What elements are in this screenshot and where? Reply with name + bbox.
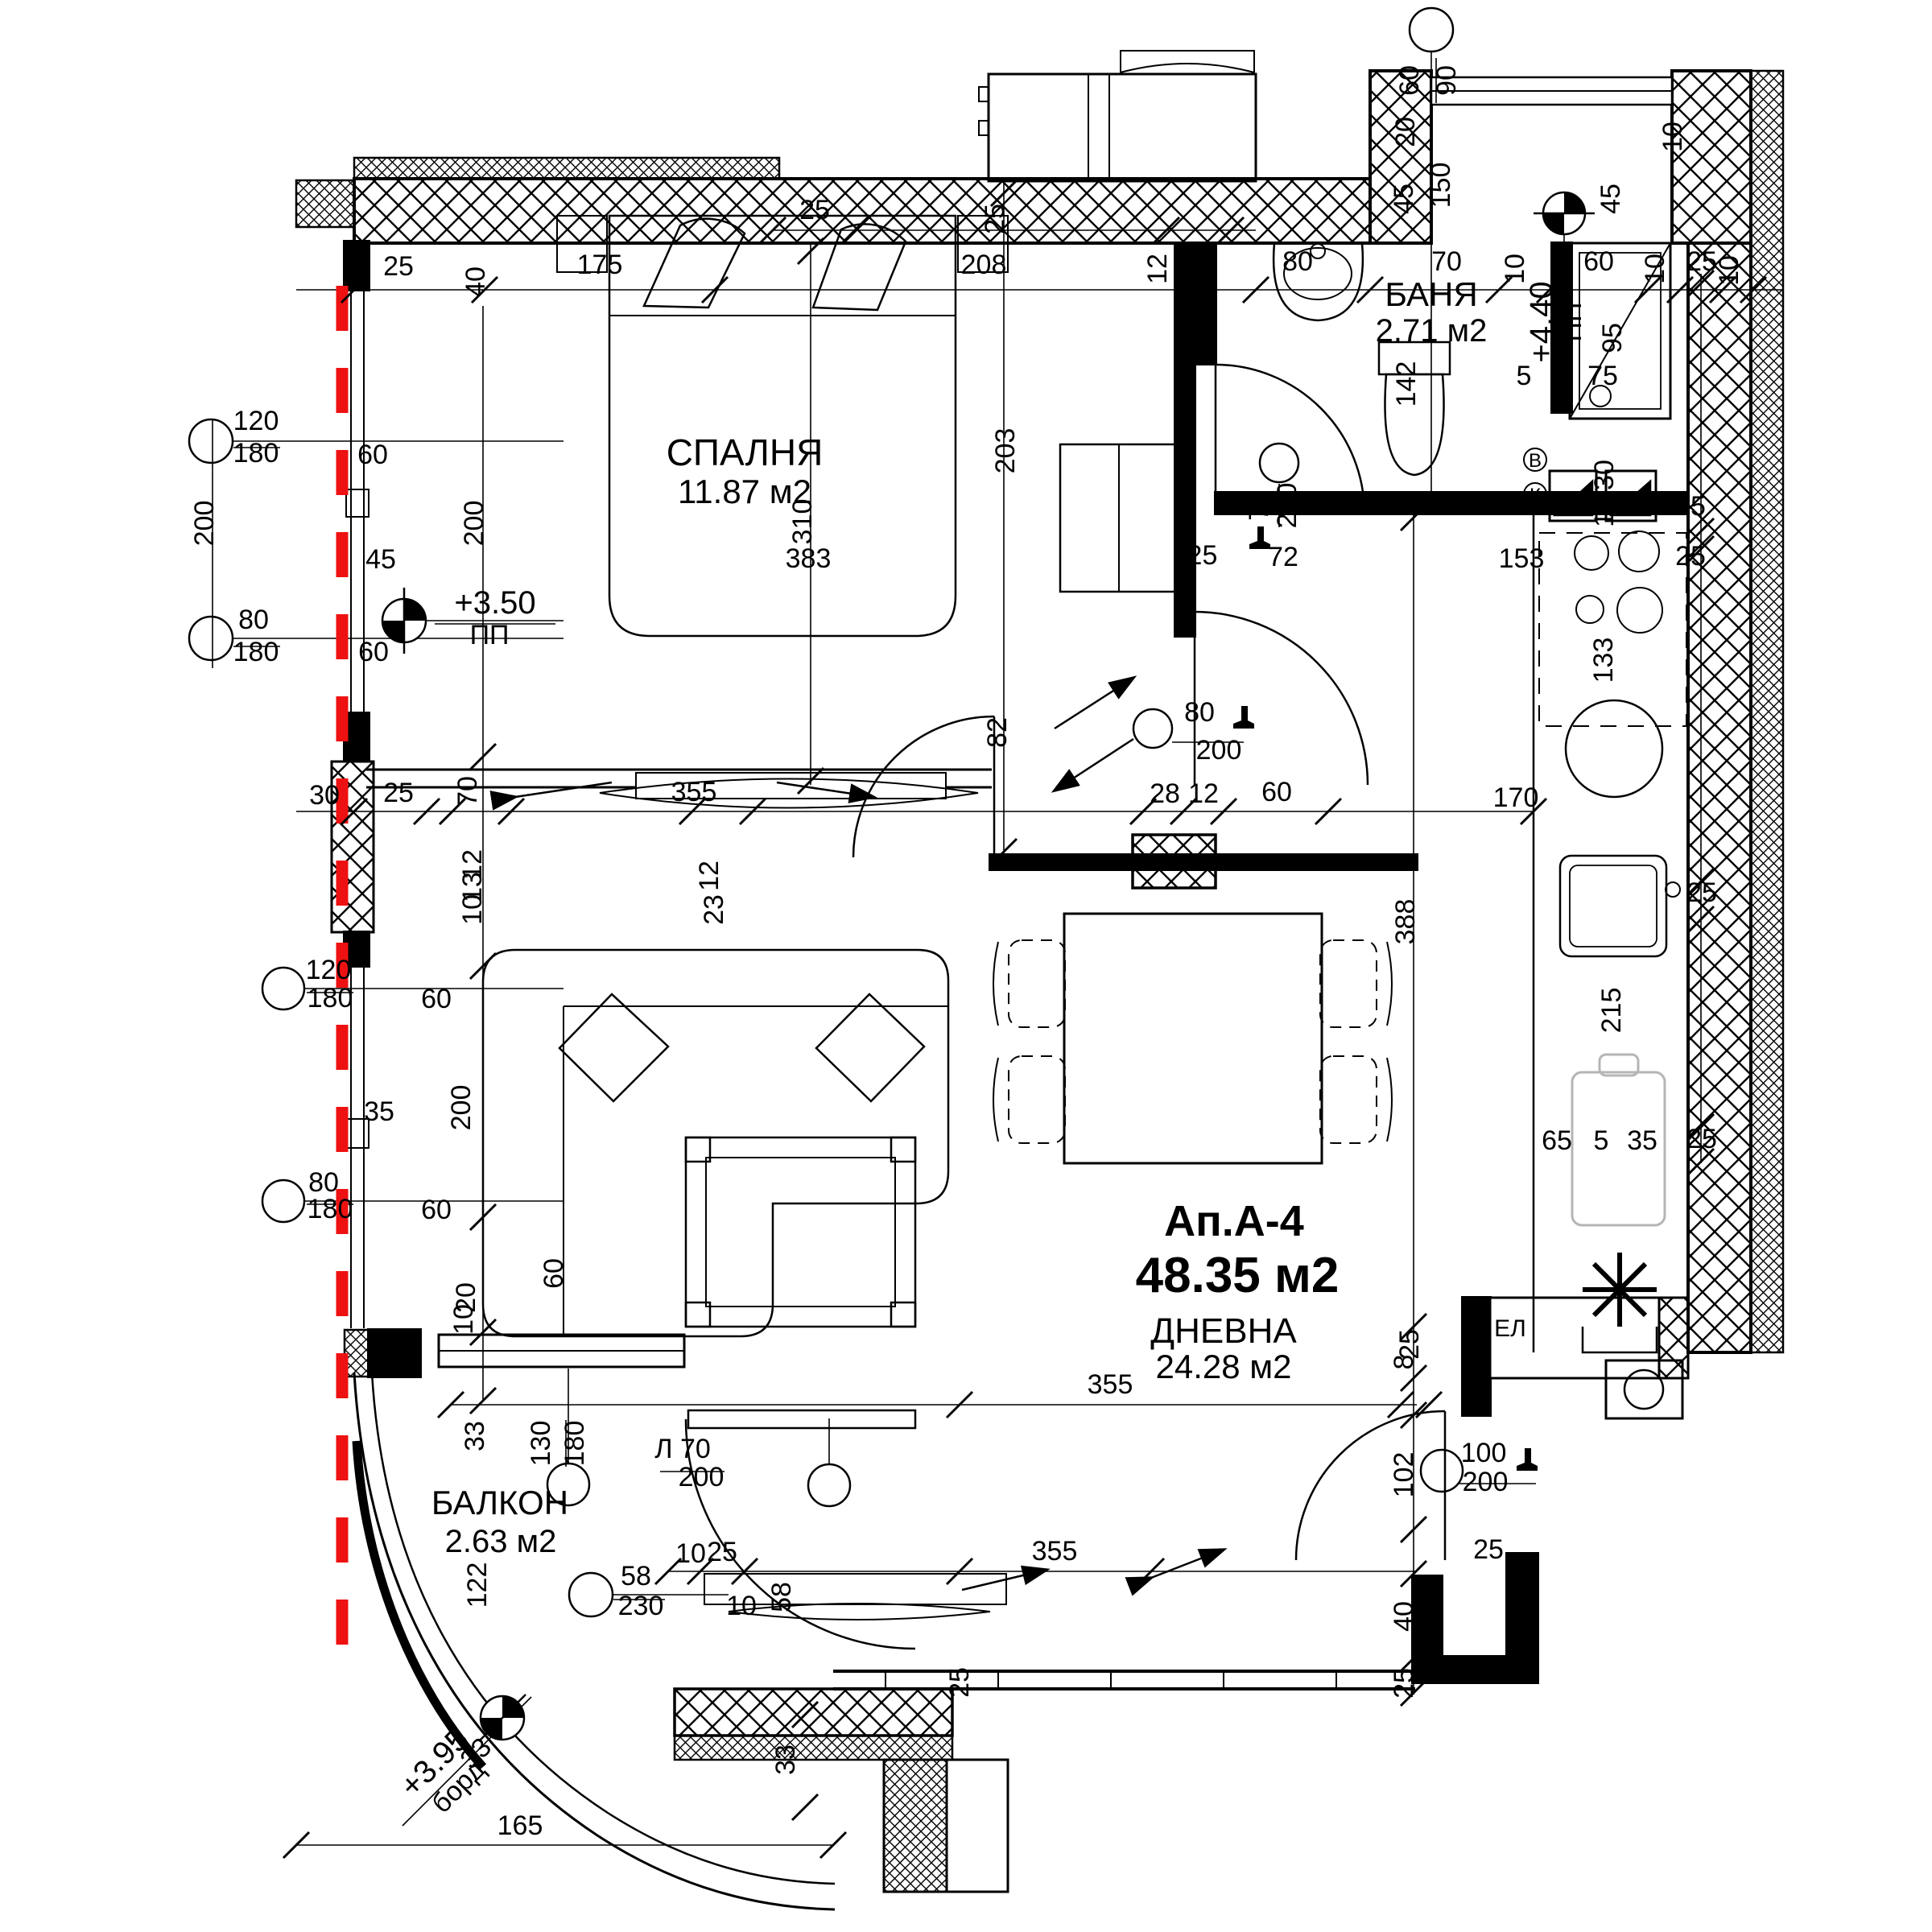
dimension-label: 12 — [694, 861, 724, 891]
dimension-label: 30 — [309, 780, 340, 811]
axis-bubble — [808, 1464, 850, 1506]
ac-unit-top — [1121, 51, 1254, 72]
dimension-label: 133 — [1588, 638, 1619, 683]
cooktop-burner — [1619, 531, 1659, 572]
room-label-bedroom: СПАЛНЯ — [667, 431, 824, 473]
dimension-label: 8 — [1389, 1355, 1419, 1370]
dimension-label: 230 — [618, 1591, 664, 1621]
dimension-label: 125 — [1172, 540, 1218, 571]
dimension-label: 60 — [421, 984, 452, 1014]
chair — [1320, 940, 1377, 1027]
dimension-label: 25 — [1389, 1668, 1419, 1699]
door-swing-arrow — [1055, 678, 1133, 729]
dimension-label: 355 — [1088, 1369, 1133, 1400]
dimension-label: 10 — [1640, 254, 1670, 284]
bed — [609, 216, 956, 636]
dimension-label: 25 — [383, 778, 414, 808]
dimension-label: ЕЛ — [1494, 1315, 1526, 1342]
dining-table — [1064, 914, 1322, 1163]
level-symbol — [1534, 192, 1595, 234]
dimension-label: 60 — [1394, 65, 1425, 96]
room-label-living: ДНЕВНА — [1150, 1311, 1297, 1351]
dimension-label: 45 — [1389, 184, 1419, 214]
wall-segment — [1175, 243, 1195, 636]
dimension-label: 12 — [1142, 254, 1173, 284]
dimension-label: 60 — [421, 1195, 452, 1225]
dimension-label: 25 — [1675, 491, 1706, 522]
chair — [1009, 1056, 1065, 1143]
dimension-label: 102 — [1389, 1452, 1419, 1498]
dimension-label: 388 — [1390, 899, 1421, 945]
dimension-label: 25 — [980, 204, 1010, 234]
level-symbol — [382, 588, 426, 654]
coffee-table-inner — [706, 1158, 895, 1307]
dimension-label: 10 — [726, 1591, 757, 1621]
kitchen-sink-inner — [1570, 865, 1657, 947]
dimension-label: 60 — [539, 1258, 569, 1289]
walls — [296, 71, 1783, 1909]
level-label: ПП — [1557, 303, 1587, 342]
dimension-label: 165 — [497, 1810, 543, 1841]
level-value: +3.50 — [454, 585, 535, 621]
door-arc-balcony — [686, 1419, 915, 1649]
fixtures — [1274, 243, 1686, 1418]
cooktop-burner — [1617, 588, 1662, 633]
dimension-label: 25 — [383, 251, 414, 282]
wall-segment — [1688, 243, 1751, 1352]
dimension-label: 60 — [357, 440, 388, 470]
dimension-label: 40 — [460, 266, 491, 297]
chair — [1320, 1056, 1377, 1143]
dimension-label: 215 — [1596, 988, 1627, 1034]
dimension-label: 58 — [766, 1582, 797, 1612]
dimension-label: 25 — [707, 1537, 737, 1567]
chair-back — [993, 1058, 998, 1141]
faucet-icon — [1666, 882, 1680, 897]
room-label-bath: БАНЯ — [1385, 275, 1477, 313]
dimension-label: 12 — [1589, 497, 1620, 527]
dimension-label: 355 — [671, 777, 717, 807]
wall-segment — [884, 1760, 947, 1892]
wall-segment — [296, 180, 354, 227]
sofa-pillow — [816, 994, 924, 1101]
dimension-label: 200 — [189, 501, 220, 547]
dimension-label: 170 — [1493, 782, 1539, 813]
dimension-label: 10 — [1500, 254, 1530, 284]
dimension-label: 12 — [1188, 778, 1219, 809]
balcony-edge-outer — [354, 1373, 835, 1909]
cooktop-burner — [1576, 596, 1604, 623]
dimension-label: 203 — [990, 428, 1021, 474]
dimension-label: 25 — [1473, 1534, 1504, 1565]
layout-arrow — [962, 1570, 1046, 1590]
chair-back — [993, 942, 998, 1026]
wall-segment — [1370, 71, 1431, 243]
dimension-label: 40 — [1389, 1601, 1419, 1632]
dimension-label: 10 — [675, 1538, 706, 1569]
dimension-label: 90 — [1431, 65, 1462, 96]
dimension-label: В — [1529, 450, 1542, 472]
dimension-label: 60 — [358, 637, 389, 667]
dimension-label: 35 — [1627, 1125, 1657, 1156]
dimension-label: 70 — [1244, 490, 1274, 521]
dimension-label: 120 — [306, 955, 352, 985]
dimension-label: 200 — [1196, 735, 1242, 766]
window-mullion — [346, 489, 369, 517]
dimension-label: 95 — [1597, 323, 1628, 353]
wall-segment — [354, 158, 779, 179]
dimension-label: 122 — [462, 1563, 493, 1608]
axis-bubble — [1410, 8, 1453, 52]
dimension-label: 80 — [238, 605, 269, 635]
dimension-label: 60 — [1583, 246, 1614, 277]
level-mark-440: +4.40 ПП — [1524, 281, 1587, 362]
dimension-label: 180 — [308, 1194, 353, 1224]
cooktop-burner — [1575, 536, 1608, 570]
dimension-label: 142 — [1391, 361, 1422, 407]
door-arc-entry — [1296, 1411, 1445, 1560]
door-swing-arrow — [1055, 739, 1133, 791]
dimension-label: 25 — [799, 195, 830, 225]
dimension-label: 45 — [1596, 184, 1626, 214]
dresser — [1060, 444, 1175, 592]
axis-bubble — [569, 1573, 613, 1616]
apartment-area: 48.35 м2 — [1136, 1248, 1340, 1303]
dimension-label: 150 — [1426, 163, 1456, 208]
dimension-label: 180 — [233, 637, 279, 667]
wall-segment — [675, 1689, 952, 1736]
coffee-table — [686, 1137, 915, 1327]
dimension-label: 10 — [448, 1304, 479, 1335]
dimension-label: 200 — [1463, 1467, 1509, 1497]
dimension-label: 355 — [1032, 1536, 1078, 1567]
dimension-label: 23 — [699, 894, 729, 925]
dimension-label: 82 — [982, 717, 1013, 748]
dimension-label: К — [1529, 485, 1541, 506]
dimension-ticks — [283, 180, 1766, 1858]
axis-bubble — [262, 1180, 304, 1222]
room-label-balcony: БАЛКОН — [431, 1484, 568, 1521]
layout-arrow — [1151, 1550, 1224, 1578]
dimension-label: 208 — [961, 250, 1007, 280]
dimension-label: 25 — [1675, 541, 1706, 572]
axis-bubble — [1133, 709, 1172, 748]
dimension-label: 180 — [559, 1421, 590, 1467]
dimension-label: 5 — [1594, 1125, 1609, 1156]
floor-plan-drawing: +3.50 ПП +4.40 ПП +3.95 борд СПАЛНЯ — [0, 0, 1932, 1932]
dimension-label: 60 — [1261, 777, 1292, 807]
ac-unit-foot — [979, 121, 989, 135]
kitchen-sink-round — [1566, 700, 1662, 797]
floor-plan-canvas: +3.50 ПП +4.40 ПП +3.95 борд СПАЛНЯ — [0, 0, 1932, 1932]
room-area-balcony: 2.63 м2 — [445, 1524, 557, 1559]
dimension-label: 70 — [1431, 246, 1462, 277]
dimension-label: 75 — [1587, 361, 1618, 391]
dimension-label: 35 — [364, 1096, 394, 1127]
wall-segment — [1463, 1298, 1490, 1415]
dimension-label: 383 — [786, 543, 832, 574]
ledge-arrow-left — [515, 782, 612, 797]
dimension-label: 80 — [1282, 246, 1313, 277]
dimension-label: 10 — [457, 894, 488, 925]
dimension-label: Л 70 — [654, 1434, 711, 1464]
dimension-label: 200 — [459, 501, 489, 547]
dimension-label: 45 — [365, 544, 396, 575]
chair-back — [1387, 942, 1392, 1026]
wall-segment — [1413, 1657, 1538, 1682]
wall-segment — [1659, 1298, 1688, 1378]
wall-segment — [354, 179, 1370, 243]
chair-back — [1387, 1058, 1392, 1141]
dimension-label: 65 — [1542, 1125, 1572, 1156]
chair — [1009, 940, 1065, 1027]
dimension-label: 10 — [1714, 255, 1744, 286]
ac-unit — [989, 74, 1256, 181]
dimension-label: 10 — [1657, 122, 1688, 152]
dimension-label: 28 — [1150, 778, 1180, 809]
wall-segment — [1195, 243, 1216, 364]
axis-bubble — [189, 617, 233, 660]
kitchen-sink — [1560, 856, 1666, 956]
wall-segment — [1751, 71, 1783, 1352]
tick-mark — [792, 1794, 818, 1820]
tick-mark — [1416, 1392, 1442, 1418]
axis-bubble — [1260, 444, 1298, 482]
wall-segment — [1507, 1554, 1538, 1658]
level-label: ПП — [470, 620, 510, 650]
dimension-label: 200 — [1272, 483, 1302, 529]
wall-segment — [345, 242, 369, 290]
dimension-label: 200 — [679, 1462, 724, 1492]
wall-segment — [1672, 71, 1751, 243]
dimension-label: 5 — [1517, 361, 1532, 391]
hood-outline — [1539, 533, 1686, 726]
level-mark-350: +3.50 ПП — [454, 585, 535, 650]
dimension-label: 120 — [233, 406, 279, 436]
dimension-label: 175 — [577, 250, 623, 280]
dimension-label: 70 — [452, 776, 483, 807]
dimension-label: 20 — [1390, 117, 1421, 147]
wall-segment — [990, 855, 1417, 869]
ac-unit-foot — [979, 87, 989, 101]
wall-segment — [675, 1736, 952, 1760]
apartment-code: Ап.А-4 — [1164, 1197, 1304, 1245]
sofa-pillow — [559, 994, 668, 1101]
dimension-label: 180 — [233, 438, 279, 469]
dimension-label: 25 — [944, 1667, 975, 1698]
door-panel-balcony — [688, 1410, 915, 1428]
dimension-label: 153 — [1499, 543, 1545, 574]
axis-bubble — [1421, 1450, 1463, 1492]
wall-segment — [369, 1330, 420, 1377]
wall-segment — [947, 1760, 1008, 1892]
dimension-label: 72 — [1268, 542, 1298, 572]
dimension-label: 80 — [1184, 697, 1215, 728]
axis-bubble — [262, 968, 304, 1009]
dimension-label: 310 — [787, 499, 818, 545]
dimension-label: 58 — [621, 1561, 651, 1591]
dimension-label: 130 — [526, 1421, 556, 1467]
room-area-living: 24.28 м2 — [1155, 1348, 1291, 1385]
room-area-bath: 2.71 м2 — [1376, 313, 1488, 349]
dimension-label: 200 — [446, 1085, 477, 1131]
dimension-label: 180 — [308, 983, 353, 1013]
level-value: +4.40 — [1524, 281, 1559, 362]
dimension-label: 30 — [1589, 460, 1620, 490]
dimension-label: 33 — [770, 1744, 801, 1775]
axis-bubble — [189, 419, 233, 463]
dimension-label: 33 — [460, 1421, 490, 1451]
dimension-label: 100 — [1461, 1438, 1507, 1468]
